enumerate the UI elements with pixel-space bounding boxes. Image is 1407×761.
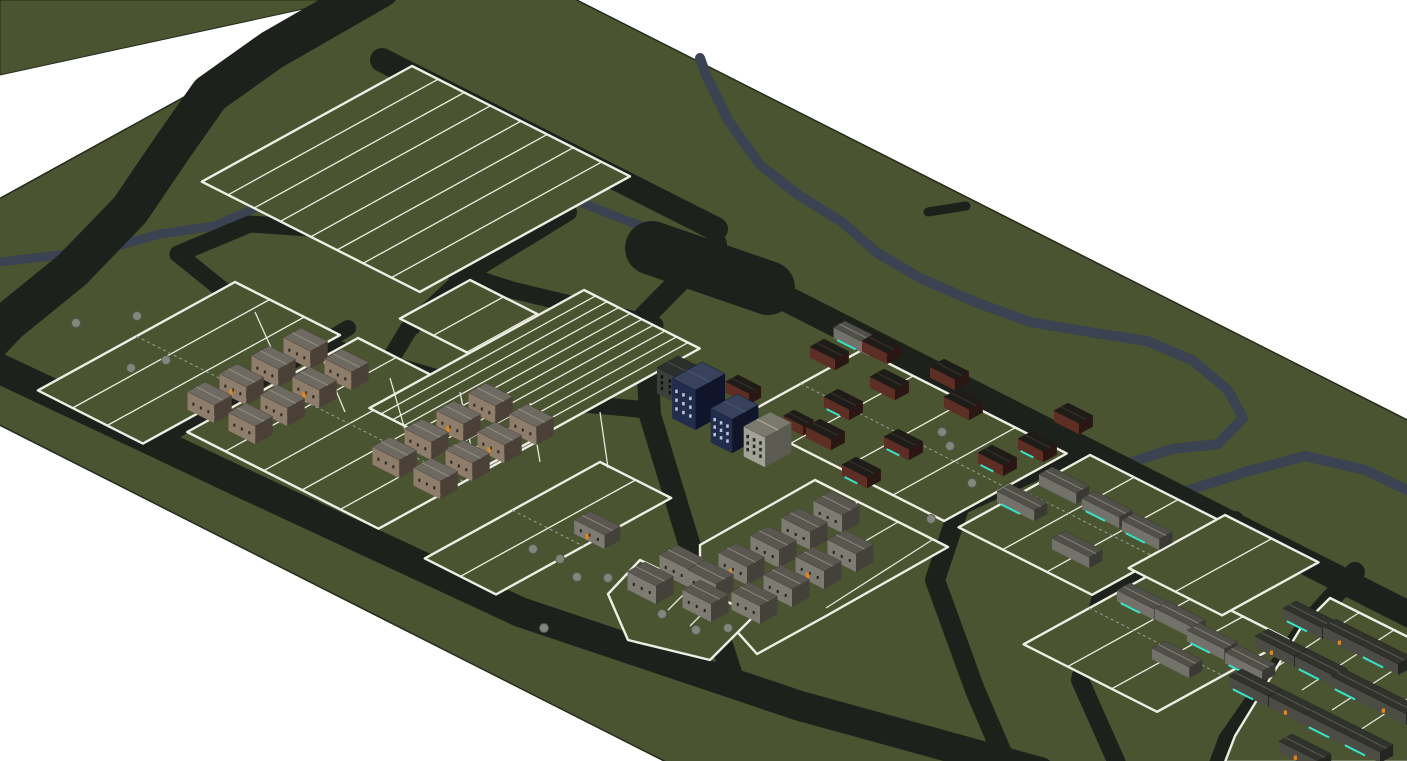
window <box>777 590 779 593</box>
window <box>689 406 692 409</box>
window <box>248 431 250 434</box>
window <box>661 381 664 384</box>
window <box>409 440 411 443</box>
bush <box>556 555 565 564</box>
window <box>726 432 729 435</box>
bush <box>968 479 977 488</box>
window <box>753 451 756 454</box>
window <box>787 529 789 532</box>
window <box>713 418 716 421</box>
window <box>835 520 837 523</box>
window <box>207 410 209 413</box>
bush <box>658 610 667 619</box>
window <box>433 486 435 489</box>
window <box>529 432 531 435</box>
bush <box>573 573 582 582</box>
window <box>682 393 685 396</box>
window <box>385 461 387 464</box>
window <box>192 403 194 406</box>
model-viewport-canvas[interactable] <box>0 0 1407 761</box>
window <box>661 387 664 390</box>
lit-door <box>1338 641 1341 645</box>
bush <box>724 624 733 633</box>
window <box>713 425 716 428</box>
window <box>785 594 787 597</box>
window <box>849 559 851 562</box>
window <box>689 414 692 417</box>
window <box>726 424 729 427</box>
bush <box>162 356 171 365</box>
bush <box>927 515 936 524</box>
window <box>264 370 266 373</box>
window <box>819 512 821 515</box>
lit-door <box>1382 709 1385 713</box>
window <box>392 465 394 468</box>
window <box>256 367 258 370</box>
window <box>329 370 331 373</box>
window <box>297 388 299 391</box>
bush <box>529 545 538 554</box>
window <box>669 391 672 394</box>
lit-door <box>1294 756 1297 760</box>
window <box>424 447 426 450</box>
lit-door <box>1270 651 1273 655</box>
window <box>724 564 726 567</box>
window <box>337 373 339 376</box>
window <box>746 441 749 444</box>
window <box>746 435 749 438</box>
window <box>759 454 762 457</box>
window <box>473 404 475 407</box>
window <box>740 572 742 575</box>
window <box>597 538 599 541</box>
window <box>772 555 774 558</box>
window <box>233 424 235 427</box>
window <box>481 407 483 410</box>
window <box>280 413 282 416</box>
window <box>441 422 443 425</box>
window <box>426 482 428 485</box>
window <box>675 398 678 401</box>
bush <box>604 574 613 583</box>
window <box>649 591 651 594</box>
window <box>241 427 243 430</box>
window <box>377 458 379 461</box>
window <box>682 402 685 405</box>
window <box>675 390 678 393</box>
window <box>795 533 797 536</box>
window <box>633 583 635 586</box>
window <box>271 374 273 377</box>
window <box>522 428 524 431</box>
window <box>688 601 690 604</box>
window <box>450 461 452 464</box>
bush <box>133 312 142 321</box>
window <box>488 411 490 414</box>
window <box>737 603 739 606</box>
window <box>239 392 241 395</box>
window <box>588 534 590 537</box>
window <box>720 429 723 432</box>
window <box>713 433 716 436</box>
window <box>288 349 290 352</box>
window <box>312 395 314 398</box>
window <box>753 611 755 614</box>
window <box>756 547 758 550</box>
window <box>682 411 685 414</box>
window <box>689 397 692 400</box>
window <box>764 551 766 554</box>
window <box>273 409 275 412</box>
window <box>801 568 803 571</box>
window <box>497 450 499 453</box>
window <box>669 385 672 388</box>
cad-3d-viewport[interactable] <box>0 0 1407 761</box>
window <box>726 439 729 442</box>
window <box>675 407 678 410</box>
window <box>514 425 516 428</box>
window <box>303 356 305 359</box>
window <box>200 406 202 409</box>
window <box>344 377 346 380</box>
window <box>673 570 675 573</box>
window <box>704 609 706 612</box>
window <box>661 375 664 378</box>
bush <box>540 624 549 633</box>
window <box>417 443 419 446</box>
window <box>224 385 226 388</box>
bush <box>692 626 701 635</box>
window <box>418 479 420 482</box>
window <box>669 379 672 382</box>
window <box>803 537 805 540</box>
bush <box>127 364 136 373</box>
road-stub-northeast <box>928 206 966 212</box>
window <box>841 555 843 558</box>
window <box>482 443 484 446</box>
window <box>746 448 749 451</box>
window <box>827 516 829 519</box>
window <box>833 551 835 554</box>
window <box>465 468 467 471</box>
window <box>665 566 667 569</box>
lit-door <box>585 534 588 539</box>
window <box>265 406 267 409</box>
window <box>456 429 458 432</box>
window <box>817 576 819 579</box>
window <box>681 574 683 577</box>
window <box>641 587 643 590</box>
window <box>580 529 582 532</box>
window <box>753 438 756 441</box>
bush <box>72 319 81 328</box>
lit-door <box>1284 711 1287 715</box>
window <box>696 605 698 608</box>
window <box>296 352 298 355</box>
window <box>745 607 747 610</box>
window <box>720 421 723 424</box>
window <box>753 445 756 448</box>
window <box>759 448 762 451</box>
bush <box>946 442 955 451</box>
window <box>759 441 762 444</box>
window <box>720 436 723 439</box>
window <box>458 464 460 467</box>
bush <box>938 428 947 437</box>
window <box>769 586 771 589</box>
